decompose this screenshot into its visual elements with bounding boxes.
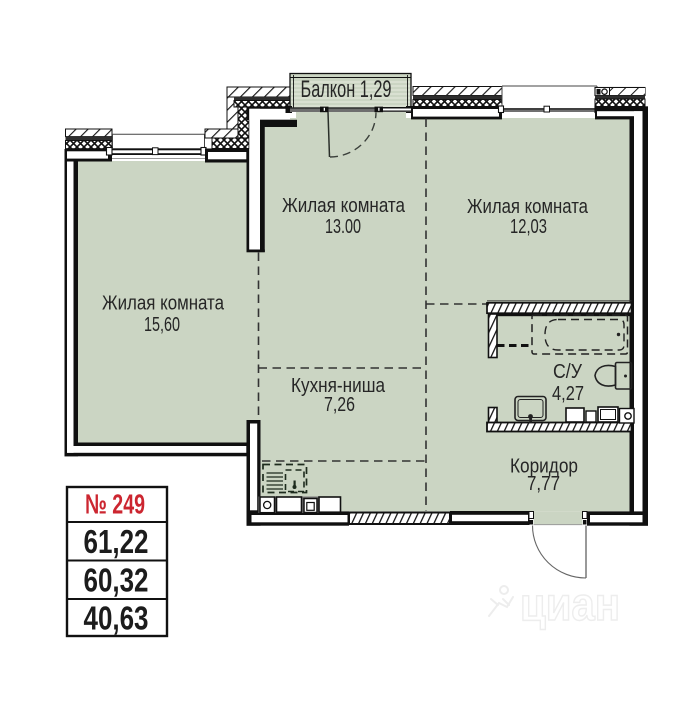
svg-text:61,22: 61,22	[84, 523, 149, 560]
svg-text:циан: циан	[520, 578, 620, 630]
svg-text:40,63: 40,63	[84, 600, 149, 637]
svg-text:60,32: 60,32	[84, 562, 149, 599]
svg-text:Балкон 1,29: Балкон 1,29	[301, 76, 392, 103]
svg-text:7,26: 7,26	[324, 394, 355, 416]
svg-text:Жилая комната: Жилая комната	[102, 293, 225, 315]
svg-text:№ 249: № 249	[85, 489, 145, 520]
svg-text:7,77: 7,77	[527, 473, 560, 495]
svg-text:13.00: 13.00	[325, 216, 361, 238]
svg-text:С/У: С/У	[553, 361, 582, 383]
svg-text:4,27: 4,27	[552, 383, 584, 405]
svg-text:15,60: 15,60	[144, 314, 180, 336]
svg-text:12,03: 12,03	[510, 216, 547, 238]
svg-text:Жилая комната: Жилая комната	[467, 196, 589, 218]
svg-text:Жилая комната: Жилая комната	[282, 195, 406, 217]
